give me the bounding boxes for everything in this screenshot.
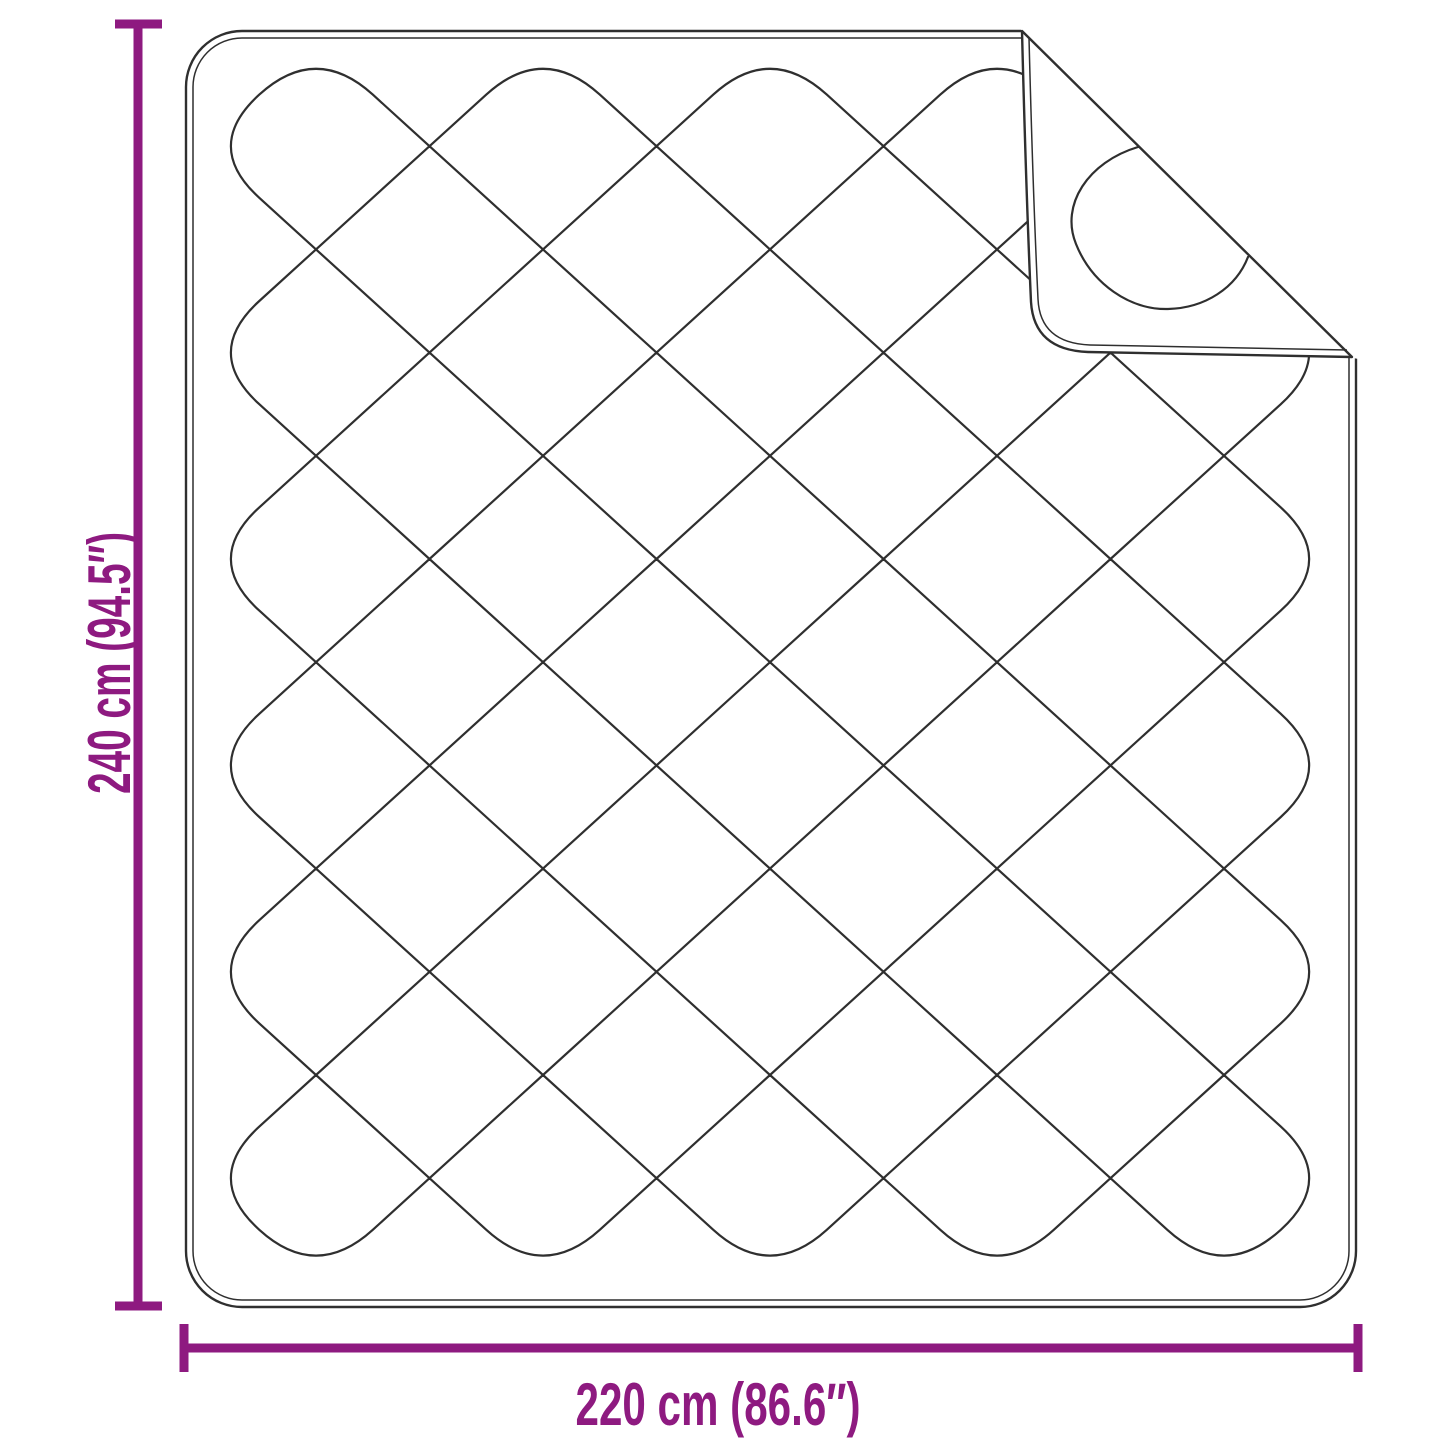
width-label: 220 cm (86.6″) <box>576 1371 861 1438</box>
height-label: 240 cm (94.5″) <box>76 532 143 794</box>
dimension-diagram: 240 cm (94.5″) 220 cm (86.6″) <box>0 0 1445 1445</box>
blanket <box>186 6 1376 1307</box>
height-dimension: 240 cm (94.5″) <box>76 24 162 1306</box>
width-dimension: 220 cm (86.6″) <box>184 1324 1358 1438</box>
diagram-canvas: 240 cm (94.5″) 220 cm (86.6″) <box>0 0 1445 1445</box>
